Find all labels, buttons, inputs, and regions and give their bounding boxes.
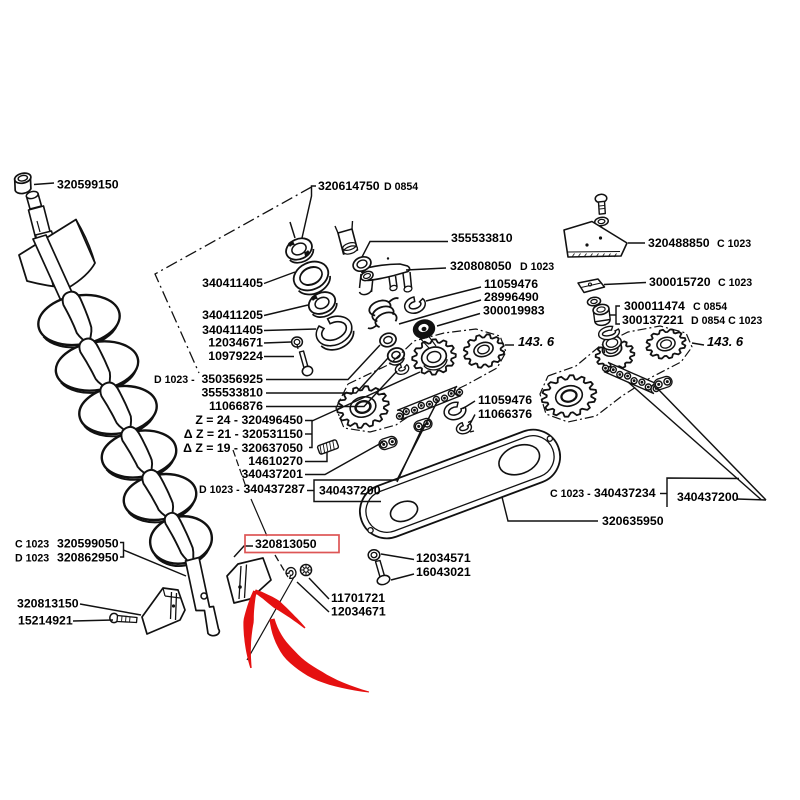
svg-text:C 0854: C 0854 (693, 301, 727, 313)
svg-text:11059476: 11059476 (484, 277, 538, 291)
svg-text:D 1023 -: D 1023 - (199, 484, 240, 496)
svg-text:12034571: 12034571 (416, 551, 471, 565)
svg-text:355533810: 355533810 (451, 231, 513, 245)
svg-text:D 1023: D 1023 (520, 261, 554, 273)
svg-text:320599050: 320599050 (57, 537, 119, 551)
svg-text:D 1023: D 1023 (15, 553, 49, 565)
svg-text:320488850: 320488850 (648, 236, 710, 250)
svg-text:28996490: 28996490 (484, 290, 539, 304)
svg-text:C 1023: C 1023 (718, 277, 752, 289)
svg-text:15214921: 15214921 (18, 614, 73, 628)
svg-text:340437200: 340437200 (319, 484, 381, 498)
svg-text:143. 6: 143. 6 (518, 334, 555, 349)
svg-text:11066876: 11066876 (209, 399, 263, 413)
svg-text:340411205: 340411205 (202, 308, 263, 322)
svg-text:300015720: 300015720 (649, 275, 711, 289)
svg-text:300019983: 300019983 (483, 304, 545, 318)
svg-text:320599150: 320599150 (57, 178, 119, 192)
svg-text:300011474: 300011474 (624, 299, 685, 313)
svg-text:12034671: 12034671 (331, 605, 386, 619)
svg-text:Δ Z = 21 - 320531150: Δ Z = 21 - 320531150 (184, 427, 303, 441)
svg-text:350356925: 350356925 (201, 372, 263, 386)
svg-text:14610270: 14610270 (248, 454, 303, 468)
svg-text:340437234: 340437234 (594, 486, 656, 500)
svg-text:C 1023: C 1023 (15, 539, 49, 551)
svg-text:D 1023 -: D 1023 - (154, 374, 195, 386)
svg-text:355533810: 355533810 (201, 386, 263, 400)
svg-text:C 1023 -: C 1023 - (550, 488, 591, 500)
svg-text:320862950: 320862950 (57, 551, 119, 565)
svg-text:143. 6: 143. 6 (707, 334, 744, 349)
svg-text:320635950: 320635950 (602, 514, 664, 528)
svg-text:340437200: 340437200 (677, 490, 739, 504)
svg-text:300137221: 300137221 (622, 313, 684, 327)
svg-text:340437287: 340437287 (243, 482, 305, 496)
svg-text:10979224: 10979224 (208, 349, 263, 363)
svg-text:D 0854 C 1023: D 0854 C 1023 (691, 315, 762, 327)
svg-text:320813050: 320813050 (255, 537, 317, 551)
svg-text:340437201: 340437201 (241, 467, 303, 481)
svg-text:11701721: 11701721 (331, 591, 385, 605)
svg-text:C 1023: C 1023 (717, 238, 751, 250)
svg-text:11059476: 11059476 (478, 393, 532, 407)
svg-text:320813150: 320813150 (17, 597, 79, 611)
svg-text:Z = 24 - 320496450: Z = 24 - 320496450 (195, 413, 303, 427)
svg-text:12034671: 12034671 (208, 336, 263, 350)
svg-text:D 0854: D 0854 (384, 181, 418, 193)
svg-text:16043021: 16043021 (416, 565, 471, 579)
svg-text:320808050: 320808050 (450, 259, 512, 273)
svg-text:11066376: 11066376 (478, 407, 532, 421)
svg-text:320614750: 320614750 (318, 179, 380, 193)
svg-text:340411405: 340411405 (202, 276, 263, 290)
svg-text:Δ Z = 19 - 320637050: Δ Z = 19 - 320637050 (183, 441, 303, 455)
